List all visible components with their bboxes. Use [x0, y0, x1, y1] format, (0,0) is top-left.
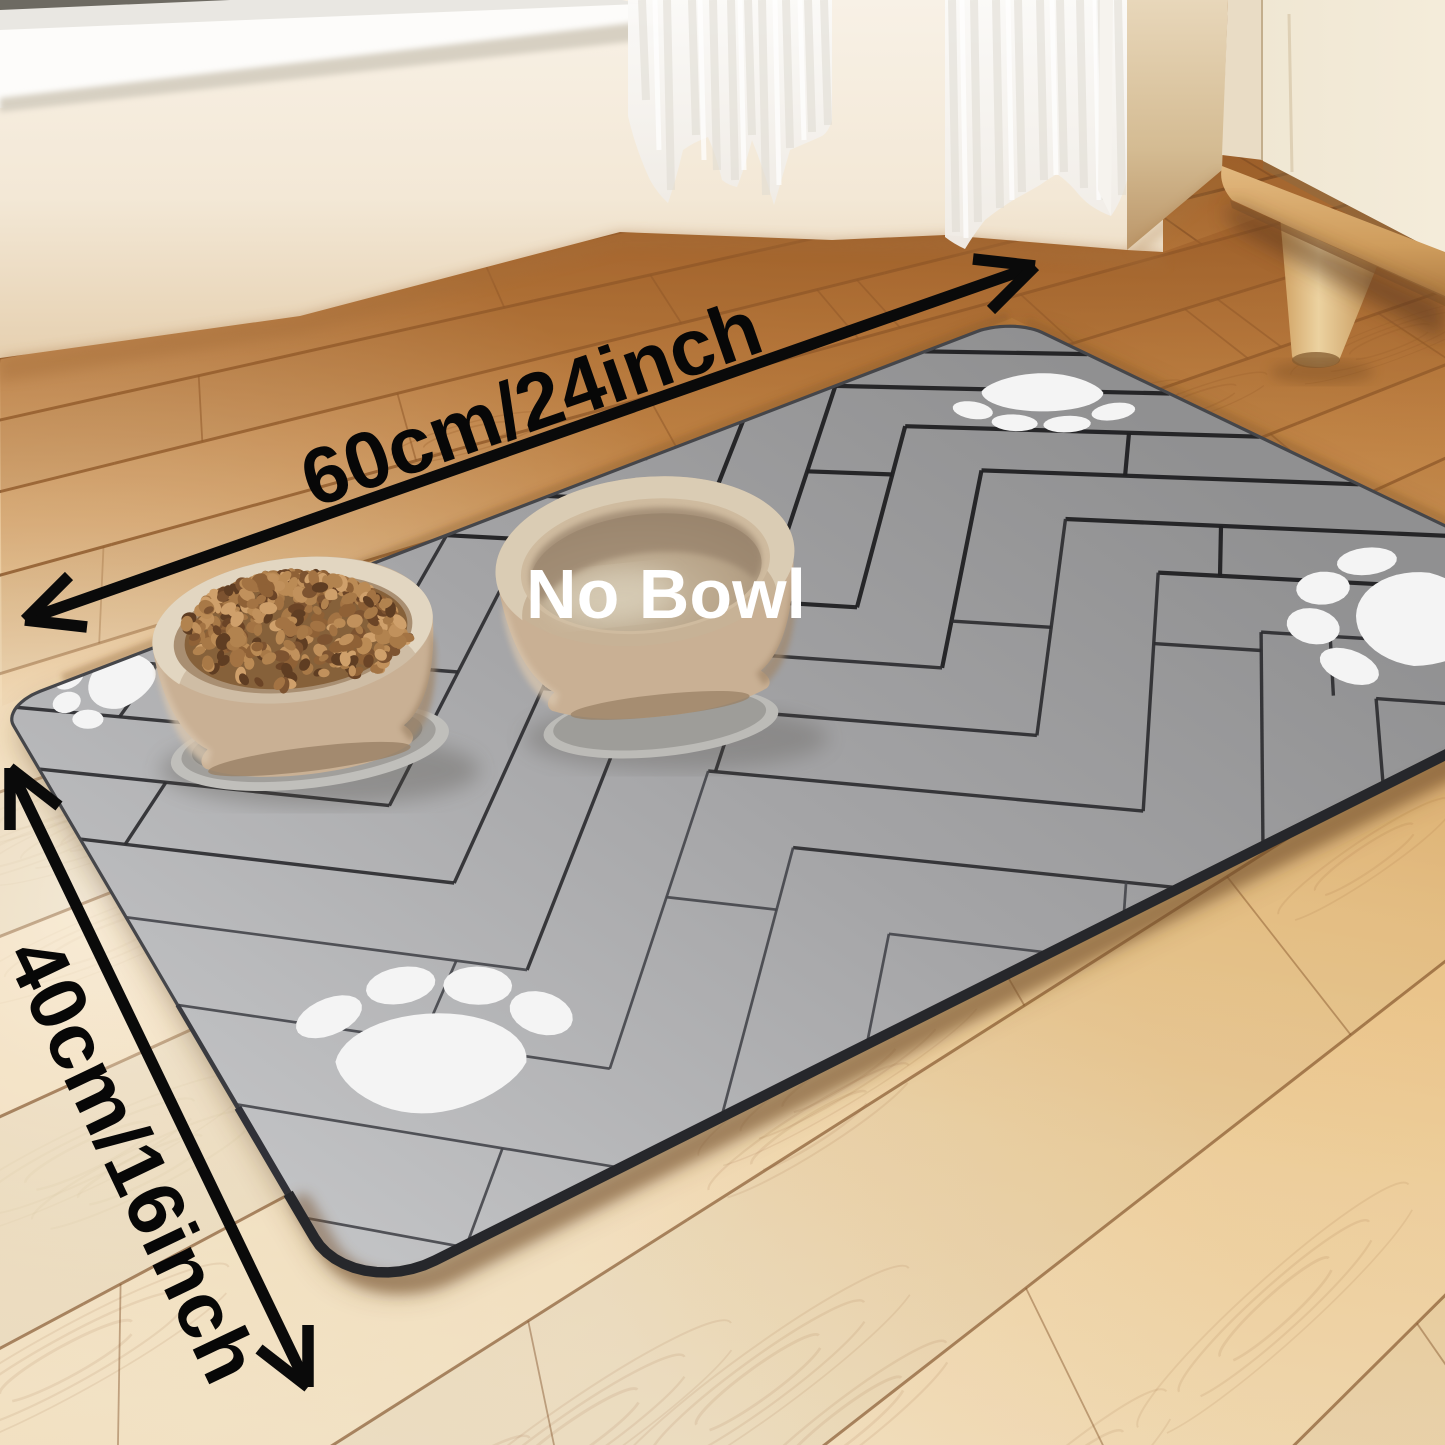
svg-text:No Bowl: No Bowl — [526, 555, 806, 633]
